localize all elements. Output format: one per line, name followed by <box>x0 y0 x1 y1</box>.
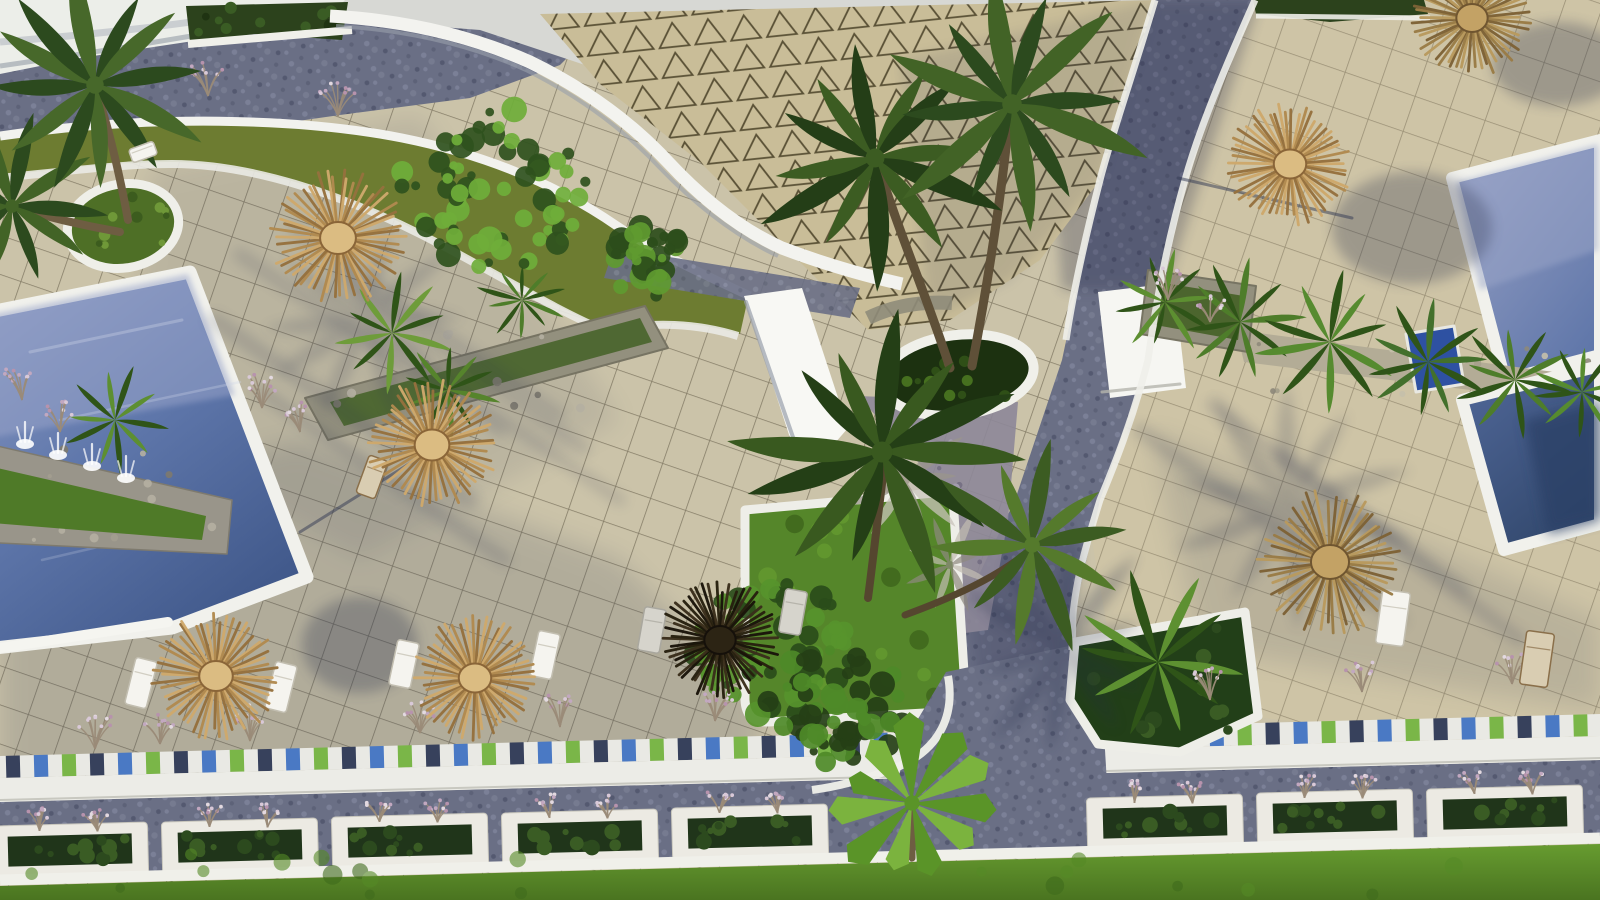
speck-dot <box>1046 876 1065 895</box>
speck-dot <box>881 567 901 587</box>
leaf-cluster <box>807 724 828 745</box>
speck-dot <box>875 648 887 660</box>
plume-flower <box>204 71 208 75</box>
leaf-cluster <box>836 636 851 651</box>
plume-stem <box>1210 296 1211 322</box>
leaf-cluster <box>793 673 812 692</box>
speck-dot <box>365 890 375 900</box>
speck-dot <box>902 376 913 387</box>
leaf-cluster <box>468 234 489 255</box>
plume-flower <box>105 717 109 721</box>
leaf-cluster <box>555 187 571 203</box>
speck-dot <box>1071 852 1086 867</box>
plume-flower <box>48 409 52 413</box>
plume-flower <box>712 691 716 695</box>
plume-flower <box>157 723 161 727</box>
leaf-cluster <box>758 691 779 712</box>
leaf-cluster <box>416 217 437 238</box>
plume-flower <box>46 405 50 409</box>
plume-flower <box>1180 277 1184 281</box>
plume-flower <box>220 68 224 72</box>
plume-flower <box>344 86 348 90</box>
speck-dot <box>1399 391 1405 397</box>
speck-dot <box>944 390 955 401</box>
plume-flower <box>273 389 277 393</box>
leaf-cluster <box>828 620 842 634</box>
leaf-cluster <box>468 178 490 200</box>
plume-flower <box>1204 669 1208 673</box>
speck-dot <box>185 848 197 860</box>
leaf-cluster <box>501 97 527 123</box>
speck-dot <box>1223 725 1233 735</box>
speck-dot <box>977 560 982 565</box>
plume-flower <box>45 413 49 417</box>
leaf-cluster <box>611 248 621 258</box>
plume-flower <box>724 702 728 706</box>
plume-flower <box>1219 306 1223 310</box>
plume-flower <box>1155 281 1159 285</box>
leaf-cluster <box>783 682 793 692</box>
plume-flower <box>8 374 12 378</box>
plume-flower <box>248 386 252 390</box>
plume-stem <box>39 814 40 831</box>
plume-flower <box>563 697 567 701</box>
plume-flower <box>703 692 707 696</box>
plume-flower <box>1368 672 1372 676</box>
plume-flower <box>730 698 734 702</box>
leaf-cluster <box>532 232 546 246</box>
plume-flower <box>1359 667 1363 671</box>
plume-flower <box>300 401 304 405</box>
speck-dot <box>937 466 941 470</box>
plume-flower <box>4 368 8 372</box>
speck-dot <box>202 13 210 21</box>
speck-dot <box>96 240 103 247</box>
leaf-cluster <box>569 188 588 207</box>
umbrella-cap <box>199 661 233 691</box>
speck-dot <box>215 16 223 24</box>
plume-flower <box>432 714 436 718</box>
palm-crown-center <box>946 561 954 569</box>
palm-crown-center <box>1024 537 1040 553</box>
leaf-cluster <box>543 205 563 225</box>
plume-flower <box>1178 272 1182 276</box>
plume-flower <box>353 91 357 95</box>
plume-flower <box>1371 661 1375 665</box>
leaf-cluster <box>491 239 512 260</box>
resort-aerial-render <box>0 0 1600 900</box>
plume-flower <box>169 725 173 729</box>
umbrella-cap <box>1456 4 1487 32</box>
speck-dot <box>32 538 36 542</box>
speck-dot <box>163 212 170 219</box>
speck-dot <box>274 854 291 871</box>
leaf-cluster <box>796 653 810 667</box>
speck-dot <box>140 450 146 456</box>
leaf-cluster <box>825 692 848 715</box>
thatch-frond <box>1328 501 1330 551</box>
plume-flower <box>303 404 307 408</box>
plume-flower <box>336 81 340 85</box>
speck-dot <box>976 867 986 877</box>
plume-flower <box>287 410 291 414</box>
plume-flower <box>557 700 561 704</box>
speck-dot <box>917 668 931 682</box>
leaf-cluster <box>626 247 639 260</box>
plume-flower <box>1351 670 1355 674</box>
plume-flower <box>262 380 266 384</box>
plume-flower <box>301 409 305 413</box>
speck-dot <box>515 887 527 899</box>
speck-dot <box>1257 342 1261 346</box>
palm-crown-center <box>86 76 104 94</box>
umbrella-cap <box>704 626 735 654</box>
speck-dot <box>101 241 109 249</box>
speck-dot <box>1541 353 1548 360</box>
speck-dot <box>144 479 152 487</box>
plume-flower <box>77 725 81 729</box>
speck-dot <box>25 867 38 880</box>
plume-flower <box>17 373 21 377</box>
leaf-cluster <box>394 179 409 194</box>
leaf-cluster <box>774 717 793 736</box>
leaf-cluster <box>825 599 837 611</box>
speck-dot <box>817 544 832 559</box>
speck-dot <box>1241 883 1255 897</box>
leaf-cluster <box>451 134 462 145</box>
resort-aerial-render-canvas <box>0 0 1600 900</box>
leaf-cluster <box>580 177 590 187</box>
speck-dot <box>958 391 966 399</box>
speck-dot <box>1445 857 1463 875</box>
speck-dot <box>111 534 118 541</box>
leaf-cluster <box>434 212 451 229</box>
plume-flower <box>108 723 112 727</box>
leaf-cluster <box>825 645 835 655</box>
leaf-cluster <box>517 138 539 160</box>
plume-flower <box>708 699 712 703</box>
plume-flower <box>269 376 273 380</box>
thatch-frond <box>1290 110 1291 155</box>
plume-flower <box>410 702 414 706</box>
speck-dot <box>962 375 973 386</box>
speck-dot <box>255 17 265 27</box>
speck-dot <box>108 212 118 222</box>
speck-dot <box>1210 705 1225 720</box>
leaf-cluster <box>860 718 869 727</box>
leaf-cluster <box>870 671 895 696</box>
plume-flower <box>1193 670 1197 674</box>
plume-flower <box>64 400 68 404</box>
speck-dot <box>1196 649 1212 665</box>
plume-flower <box>1209 294 1213 298</box>
leaf-cluster <box>546 232 569 255</box>
speck-dot <box>362 871 378 887</box>
speck-dot <box>159 240 166 247</box>
plume-flower <box>567 694 571 698</box>
plume-flower <box>143 722 147 726</box>
plume-flower <box>1344 668 1348 672</box>
speck-dot <box>208 523 217 532</box>
scene-layers <box>0 0 1600 900</box>
plume-flower <box>190 64 194 68</box>
speck-dot <box>915 378 921 384</box>
plume-flower <box>269 385 273 389</box>
thatch-frond <box>432 391 433 435</box>
plume-flower <box>100 724 104 728</box>
leaf-cluster <box>446 228 463 245</box>
plume-flower <box>156 713 160 717</box>
umbrella-cap <box>1274 150 1306 179</box>
speck-dot <box>347 389 356 398</box>
speck-dot <box>1172 881 1183 892</box>
speck-dot <box>48 474 52 478</box>
plume-flower <box>70 413 74 417</box>
plume-flower <box>1510 655 1514 659</box>
leaf-cluster <box>473 121 486 134</box>
thatch-frond <box>473 615 475 668</box>
plume-flower <box>1198 303 1202 307</box>
umbrella-shadow-right <box>1332 172 1492 284</box>
plume-flower <box>26 375 30 379</box>
speck-dot <box>221 23 232 34</box>
thatch-frond <box>473 687 475 740</box>
leaf-cluster <box>664 243 676 255</box>
plume-flower <box>1154 271 1158 275</box>
speck-dot <box>225 2 237 14</box>
leaf-cluster <box>647 237 657 247</box>
plume-flower <box>87 717 91 721</box>
plume-flower <box>319 91 323 95</box>
leaf-cluster <box>485 108 494 117</box>
leaf-cluster <box>434 238 445 249</box>
leaf-cluster <box>451 184 469 202</box>
leaf-cluster <box>492 121 504 133</box>
plume-flower <box>324 89 328 93</box>
plume-flower <box>292 407 296 411</box>
speck-dot <box>909 630 929 650</box>
speck-dot <box>576 404 585 413</box>
speck-dot <box>194 28 203 37</box>
plume-flower <box>60 400 64 404</box>
plume-flower <box>347 87 351 91</box>
plume-flower <box>1355 665 1359 669</box>
palm-crown-center <box>872 442 893 463</box>
speck-dot <box>1060 865 1073 878</box>
plume-flower <box>329 82 333 86</box>
speck-dot <box>115 883 125 893</box>
palm-crown-center <box>866 149 885 168</box>
plume-flower <box>1222 298 1226 302</box>
leaf-cluster <box>549 152 567 170</box>
leaf-cluster <box>449 161 457 169</box>
speck-dot <box>1524 346 1529 351</box>
plume-flower <box>1175 269 1179 273</box>
umbrella-cap <box>459 664 491 693</box>
plume-flower <box>544 698 548 702</box>
leaf-cluster <box>613 279 628 294</box>
plume-flower <box>422 711 426 715</box>
plume-flower <box>252 373 256 377</box>
speck-dot <box>147 495 156 504</box>
speck-dot <box>131 212 142 223</box>
plume-flower <box>1495 662 1499 666</box>
plume-flower <box>547 694 551 698</box>
plume-flower <box>1502 655 1506 659</box>
plume-flower <box>12 369 16 373</box>
plume-flower <box>1161 266 1165 270</box>
leaf-cluster <box>815 752 836 773</box>
speck-dot <box>323 865 343 885</box>
umbrella-cap <box>415 430 450 461</box>
speck-dot <box>539 334 544 339</box>
leaf-cluster <box>850 656 871 677</box>
umbrella-cap <box>320 222 356 254</box>
fan-center <box>904 795 919 810</box>
leaf-cluster <box>646 269 671 294</box>
speck-dot <box>166 471 173 478</box>
plume-flower <box>343 91 347 95</box>
speck-dot <box>1212 623 1222 633</box>
leaf-cluster <box>891 690 904 703</box>
plume-stem <box>267 807 268 827</box>
plume-flower <box>109 715 113 719</box>
plume-flower <box>3 372 7 376</box>
plume-flower <box>247 375 251 379</box>
plume-flower <box>93 716 97 720</box>
umbrella-cap <box>1311 545 1349 579</box>
speck-dot <box>1270 388 1276 394</box>
leaf-cluster <box>838 721 857 740</box>
palm-crown-center <box>1002 94 1022 114</box>
plume-flower <box>568 699 572 703</box>
plume-flower <box>1210 666 1214 670</box>
leaf-cluster <box>519 258 530 269</box>
plume-flower <box>201 61 205 65</box>
speck-dot <box>510 851 526 867</box>
palm-crown-center <box>5 199 18 212</box>
speck-dot <box>197 865 209 877</box>
leaf-cluster <box>471 259 486 274</box>
plume-flower <box>1506 656 1510 660</box>
leaf-cluster <box>658 254 667 263</box>
plume-flower <box>409 710 413 714</box>
plume-flower <box>163 719 167 723</box>
leaf-cluster <box>565 218 579 232</box>
plume-flower <box>166 721 170 725</box>
plume-stem <box>337 83 338 116</box>
leaf-cluster <box>515 210 533 228</box>
plume-flower <box>28 371 32 375</box>
plume-flower <box>405 711 409 715</box>
plume-flower <box>1219 670 1223 674</box>
speck-dot <box>90 533 99 542</box>
leaf-cluster <box>624 225 642 243</box>
leaf-cluster <box>411 181 420 190</box>
speck-dot <box>785 515 804 534</box>
leaf-cluster <box>525 167 533 175</box>
leaf-cluster <box>467 171 475 179</box>
leaf-cluster <box>497 182 511 196</box>
speck-dot <box>314 850 330 866</box>
leaf-cluster <box>442 173 453 184</box>
plume-flower <box>250 381 254 385</box>
hedge-top-right-wall <box>1256 16 1430 18</box>
speck-dot <box>127 192 138 203</box>
